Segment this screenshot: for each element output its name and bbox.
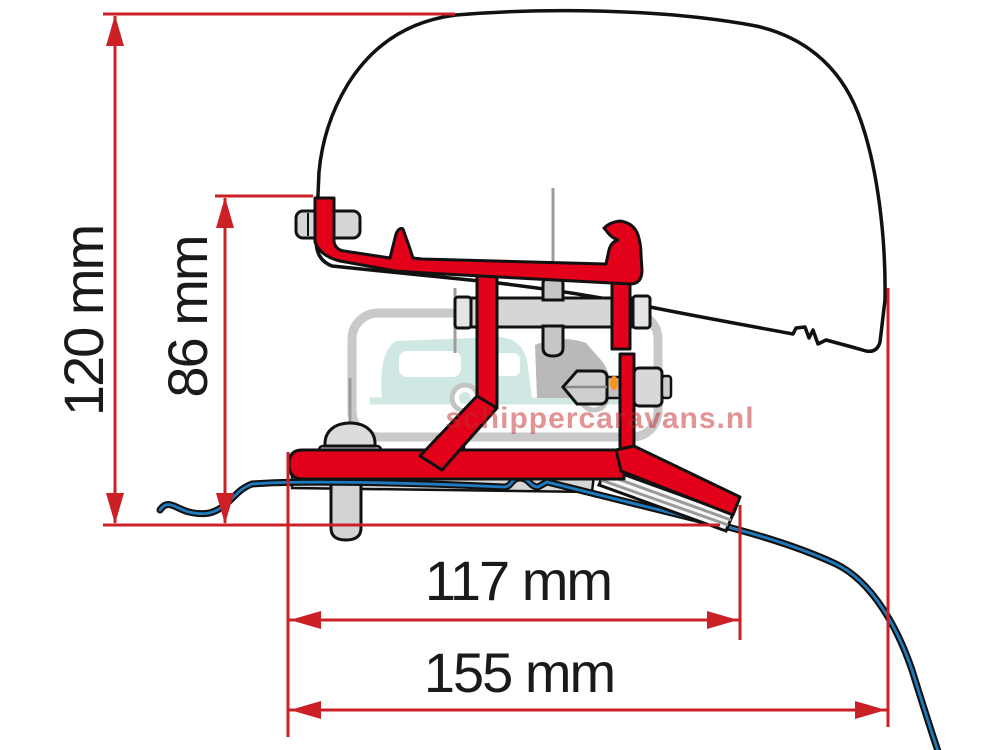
arrow-117-right <box>707 611 738 629</box>
cross-rail-left-cap <box>455 297 471 328</box>
arrow-155-left <box>290 701 321 719</box>
dimension-label-bracket-height: 86 mm <box>156 236 219 397</box>
diagram-canvas: schippercaravans.nl 120 mm 86 mm 117 mm … <box>0 0 1000 750</box>
arrow-120-up <box>106 15 124 46</box>
arrow-86-up <box>216 197 234 228</box>
dimension-label-inner-width: 117 mm <box>425 549 611 612</box>
cross-rail-right-cap <box>633 296 650 328</box>
dimension-label-total-height: 120 mm <box>52 226 115 416</box>
torx-head-nub <box>662 376 671 398</box>
arrow-117-left <box>290 611 321 629</box>
watermark-text: schippercaravans.nl <box>445 402 754 435</box>
watermark-caravan-window-left <box>399 351 461 377</box>
t-bolt-lower <box>543 326 563 356</box>
arrow-155-right <box>855 701 886 719</box>
frame-left-bar <box>477 268 497 408</box>
torx-head <box>634 368 662 406</box>
arrow-120-down <box>106 493 124 524</box>
dimension-label-total-width: 155 mm <box>424 641 614 704</box>
roof-bolt <box>331 477 361 540</box>
dome-screw-head <box>325 423 375 446</box>
adapter-dimension-diagram: schippercaravans.nl 120 mm 86 mm 117 mm … <box>0 0 1000 750</box>
orange-marker <box>610 376 618 390</box>
